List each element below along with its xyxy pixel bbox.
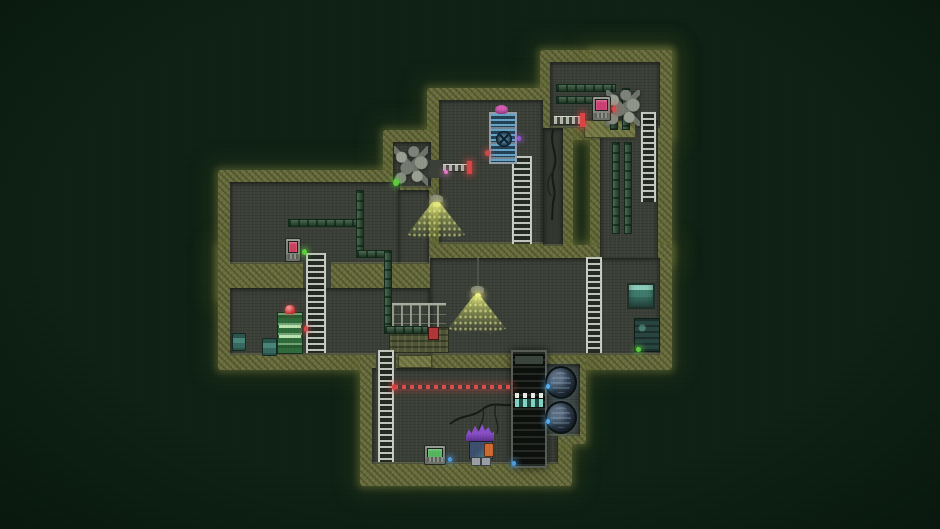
retractable-bridge-topright xyxy=(554,116,581,125)
light-green-terminal-left xyxy=(302,249,307,255)
vent-window xyxy=(627,283,655,309)
catwalk-hazard-box xyxy=(428,327,439,340)
pipe-scurve-bottom xyxy=(384,326,428,334)
pipe-column-right xyxy=(624,142,632,234)
ladder-topmiddle[interactable] xyxy=(512,156,532,244)
terminal-bottom[interactable] xyxy=(424,445,446,465)
bridge-red-tip-topright xyxy=(580,113,585,127)
light-green-wall-end xyxy=(393,179,399,186)
capsule-machine[interactable] xyxy=(277,312,303,354)
pink-creature xyxy=(495,105,508,114)
passage-alcove-door xyxy=(428,160,442,178)
room-midright-floor xyxy=(430,258,660,355)
ladder-left[interactable] xyxy=(306,253,326,353)
turbine-upper xyxy=(545,366,577,399)
wall-crack-right xyxy=(543,130,569,220)
ladder-midright[interactable] xyxy=(586,257,602,353)
pipe-scurve-drop xyxy=(384,250,392,332)
ladder-bottom[interactable] xyxy=(378,350,394,462)
player-character[interactable] xyxy=(466,424,494,464)
light-blue-turbine-lower xyxy=(546,419,550,424)
pipe-column-left xyxy=(612,142,620,234)
light-green-dark-machine xyxy=(636,347,641,352)
pipe-leftroom-vertical xyxy=(356,190,364,258)
ladder-topright[interactable] xyxy=(641,112,656,202)
light-red-fan-machine xyxy=(485,150,490,156)
light-red-capsule xyxy=(304,326,308,332)
light-blue-turbine-upper xyxy=(546,384,550,389)
sparkle-pink-bridge xyxy=(444,170,448,174)
game-viewport[interactable] xyxy=(0,0,940,529)
light-purple-fan-machine xyxy=(517,136,521,141)
pipe-leftroom-horizontal xyxy=(288,219,362,227)
dark-shaft xyxy=(511,350,547,468)
turbine-lower xyxy=(545,401,577,434)
platform-bottom-ledge xyxy=(398,355,432,368)
terminal-topright[interactable] xyxy=(592,96,611,121)
hanging-lamp-mid xyxy=(471,258,484,298)
light-red-terminal-topright xyxy=(612,106,616,112)
laser-tripwire xyxy=(394,385,514,389)
laser-emitter xyxy=(392,384,396,390)
bridge-red-tip-alcove xyxy=(467,161,472,174)
light-blue-terminal-bottom xyxy=(448,457,452,462)
fan-door-machine[interactable] xyxy=(489,112,517,164)
terminal-left[interactable] xyxy=(285,238,301,262)
catwalk-railing xyxy=(392,303,446,327)
rubble-pile-alcove xyxy=(394,146,428,186)
barrel-left-wall xyxy=(232,333,246,351)
light-blue-floor-right xyxy=(512,461,516,466)
barrel-floor xyxy=(262,338,277,356)
